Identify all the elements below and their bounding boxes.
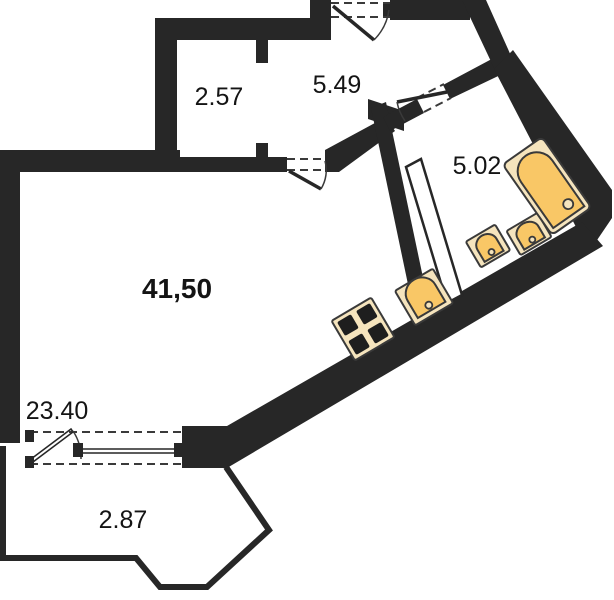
entrance-door-leaf bbox=[333, 6, 374, 40]
balcony-window bbox=[73, 443, 184, 457]
balcony-door-jamb bbox=[25, 430, 34, 442]
window-jamb bbox=[174, 443, 184, 457]
floor-plan-page: 2.57 5.49 5.02 41,50 23.40 2.87 bbox=[0, 0, 614, 600]
bathroom-door-opening bbox=[424, 98, 451, 112]
floor-plan: 2.57 5.49 5.02 41,50 23.40 2.87 bbox=[0, 0, 614, 600]
wall-stub-top bbox=[256, 40, 268, 63]
room-label-room: 23.40 bbox=[26, 397, 89, 425]
window-jamb bbox=[73, 443, 83, 457]
room-label-hall: 5.49 bbox=[313, 71, 362, 99]
room-label-total-area: 41,50 bbox=[142, 273, 212, 304]
wall-entrance-corner bbox=[310, 0, 331, 40]
wall-stub-bottom bbox=[256, 143, 268, 157]
balcony-door-leaf bbox=[31, 429, 73, 462]
wall-mid-left bbox=[0, 150, 180, 172]
room-door-leaf bbox=[289, 171, 321, 189]
entrance-door bbox=[331, 3, 391, 40]
wall-wardrobe-left bbox=[155, 18, 177, 172]
wall-left-outer bbox=[0, 150, 20, 443]
room-label-bathroom: 5.02 bbox=[453, 152, 502, 180]
wall-mid-right bbox=[160, 157, 287, 172]
bathroom-sink bbox=[466, 224, 511, 267]
wall-top-right bbox=[390, 0, 470, 20]
wall-se-main bbox=[182, 222, 603, 468]
room-label-wardrobe: 2.57 bbox=[195, 83, 244, 111]
bathroom-door-leaf bbox=[397, 92, 447, 102]
room-label-balcony: 2.87 bbox=[99, 506, 148, 534]
room-door-swing-arc bbox=[321, 161, 326, 189]
wall-top bbox=[155, 18, 323, 40]
entrance-door-jamb bbox=[383, 4, 391, 16]
room-door bbox=[287, 159, 326, 189]
